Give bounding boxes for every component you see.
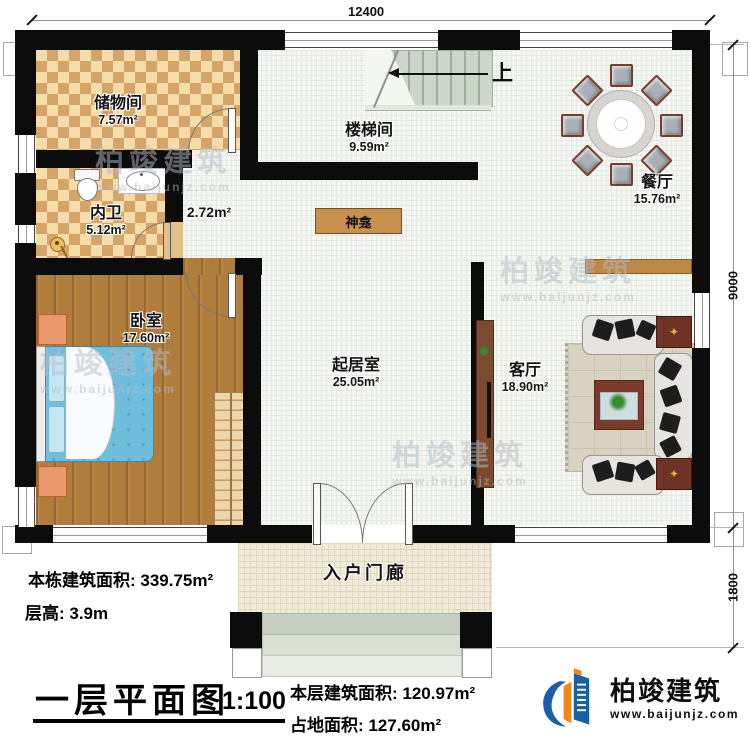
porch-step bbox=[262, 613, 462, 636]
dimension-right-label: 9000 bbox=[726, 264, 741, 308]
entry-door-leaf[interactable] bbox=[313, 483, 321, 545]
window bbox=[694, 293, 710, 348]
dining-chair[interactable] bbox=[561, 114, 584, 137]
wall-segment bbox=[165, 168, 183, 222]
bedroom-door-leaf[interactable] bbox=[228, 273, 236, 318]
storage-door-leaf[interactable] bbox=[228, 108, 236, 153]
brand-logo[interactable]: 柏竣建筑 www.baijunjz.com bbox=[538, 664, 743, 734]
porch-column-base bbox=[232, 648, 262, 678]
wall-segment bbox=[692, 348, 710, 543]
wall-segment bbox=[667, 525, 710, 543]
extension-line bbox=[710, 44, 744, 45]
corner-bracket bbox=[722, 42, 748, 76]
dining-chair[interactable] bbox=[610, 163, 633, 186]
shrine-label: 神龛 bbox=[345, 212, 371, 231]
porch-column bbox=[230, 612, 262, 648]
bathroom-door-leaf[interactable] bbox=[163, 222, 171, 260]
brand-text-block: 柏竣建筑 www.baijunjz.com bbox=[610, 678, 739, 721]
brand-website[interactable]: www.baijunjz.com bbox=[610, 707, 739, 721]
plant-icon bbox=[608, 392, 628, 412]
wall-segment bbox=[36, 258, 183, 275]
nightstand bbox=[38, 466, 67, 497]
wall-segment bbox=[240, 50, 258, 162]
plant-icon bbox=[479, 346, 489, 356]
wall-segment bbox=[15, 525, 53, 543]
room-label-porch: 入户门廊 bbox=[323, 563, 407, 583]
room-label-lounge: 客厅 18.90m² bbox=[502, 362, 549, 394]
window bbox=[18, 135, 35, 173]
wall-segment bbox=[15, 30, 36, 135]
window bbox=[285, 32, 438, 48]
wall-segment bbox=[15, 173, 36, 225]
room-label-stairwell: 楼梯间 9.59m² bbox=[345, 122, 393, 154]
wardrobe[interactable] bbox=[214, 392, 245, 526]
shower-head-center bbox=[55, 241, 59, 245]
room-label-hallway: 2.72m² bbox=[187, 205, 231, 221]
entry-door-leaf[interactable] bbox=[405, 483, 413, 545]
stat-floor-height: 层高: 3.9m bbox=[25, 599, 108, 624]
stat-floor-area: 本层建筑面积: 120.97m² bbox=[290, 679, 475, 704]
plan-title: 一层平面图 bbox=[35, 673, 230, 722]
window bbox=[53, 527, 207, 543]
shrine: 神龛 bbox=[315, 208, 402, 234]
pillow bbox=[48, 406, 65, 453]
sofa-cushion bbox=[615, 462, 636, 483]
room-label-storage: 储物间 7.57m² bbox=[94, 95, 142, 127]
wall-segment bbox=[235, 258, 262, 275]
room-label-bedroom: 卧室 17.60m² bbox=[123, 313, 170, 345]
dining-chair[interactable] bbox=[660, 114, 683, 137]
wall-segment bbox=[692, 30, 710, 293]
room-label-living: 起居室 25.05m² bbox=[332, 357, 380, 389]
stat-building-total-area: 本栋建筑面积: 339.75m² bbox=[28, 566, 213, 591]
sink[interactable] bbox=[126, 171, 160, 191]
extension-line bbox=[710, 527, 744, 528]
dimension-line-right bbox=[733, 45, 734, 648]
wall-segment bbox=[243, 275, 261, 525]
porch-column-base bbox=[462, 648, 492, 678]
room-label-dining: 餐厅 15.76m² bbox=[634, 174, 681, 206]
wall-segment bbox=[15, 243, 36, 487]
stairs-up-label: 上 bbox=[492, 57, 513, 87]
wall-segment bbox=[207, 525, 312, 543]
wall-segment bbox=[36, 150, 192, 168]
window bbox=[18, 487, 35, 527]
side-table: ✦ bbox=[656, 316, 692, 348]
console-table bbox=[585, 259, 692, 274]
brand-company-name: 柏竣建筑 bbox=[610, 678, 739, 704]
wall-segment bbox=[240, 162, 478, 180]
room-label-bathroom: 内卫 5.12m² bbox=[86, 205, 126, 237]
dimension-line-top bbox=[32, 20, 710, 21]
plan-scale: 1:100 bbox=[222, 687, 286, 716]
sofa-cushion bbox=[614, 318, 635, 339]
porch-step bbox=[262, 655, 462, 677]
wall-segment bbox=[15, 30, 285, 50]
dining-table-center bbox=[614, 117, 628, 131]
pillow bbox=[48, 355, 65, 402]
nightstand bbox=[38, 314, 67, 345]
brand-logo-icon bbox=[538, 667, 602, 731]
dimension-porch-label: 1800 bbox=[726, 566, 741, 610]
dimension-top-label: 12400 bbox=[348, 4, 384, 19]
extension-line bbox=[496, 647, 744, 648]
window bbox=[515, 527, 667, 543]
sink-faucet-icon bbox=[140, 173, 143, 176]
window bbox=[520, 32, 672, 48]
stairs-arrowhead bbox=[388, 68, 399, 78]
wardrobe-rail bbox=[230, 393, 232, 525]
stairs-direction-line bbox=[398, 73, 488, 75]
dining-chair[interactable] bbox=[610, 64, 633, 87]
porch-step bbox=[262, 634, 462, 657]
stairs-landing bbox=[365, 105, 491, 111]
wall-segment bbox=[438, 30, 520, 50]
tv-icon bbox=[487, 382, 491, 438]
window bbox=[18, 225, 35, 243]
floor-plan-page: 12400 9000 1800 bbox=[0, 0, 750, 742]
stat-footprint-area: 占地面积: 127.60m² bbox=[290, 711, 441, 736]
side-table: ✦ bbox=[656, 458, 692, 490]
title-underline bbox=[33, 719, 285, 723]
porch-column bbox=[460, 612, 492, 648]
wall-segment bbox=[412, 525, 515, 543]
